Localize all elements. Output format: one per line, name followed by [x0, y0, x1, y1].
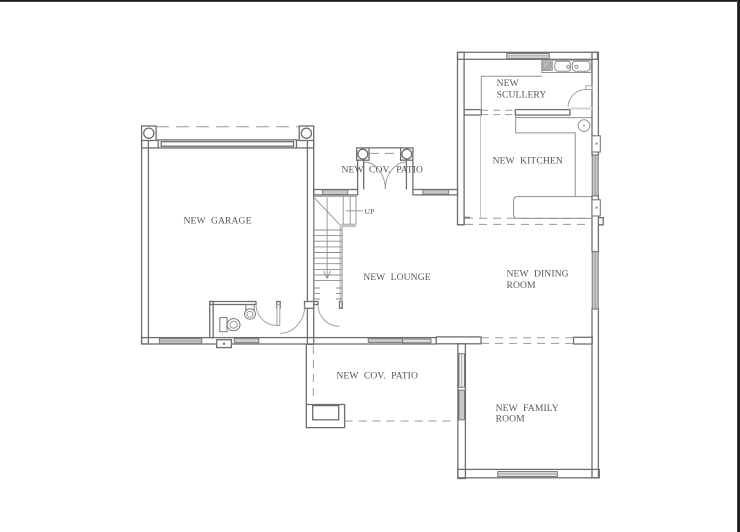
svg-text:NEW DINING: NEW DINING [507, 269, 569, 280]
svg-text:ROOM: ROOM [507, 280, 537, 291]
svg-text:NEW GARAGE: NEW GARAGE [184, 216, 252, 227]
svg-text:NEW: NEW [497, 78, 520, 89]
svg-text:NEW LOUNGE: NEW LOUNGE [363, 272, 431, 283]
svg-text:NEW FAMILY: NEW FAMILY [496, 403, 559, 414]
svg-text:ROOM: ROOM [496, 414, 526, 425]
svg-text:SCULLERY: SCULLERY [497, 89, 547, 100]
svg-text:NEW COV. PATIO: NEW COV. PATIO [342, 164, 424, 175]
svg-text:UP: UP [365, 207, 375, 216]
svg-text:NEW COV. PATIO: NEW COV. PATIO [336, 370, 418, 381]
svg-text:NEW KITCHEN: NEW KITCHEN [493, 156, 563, 167]
